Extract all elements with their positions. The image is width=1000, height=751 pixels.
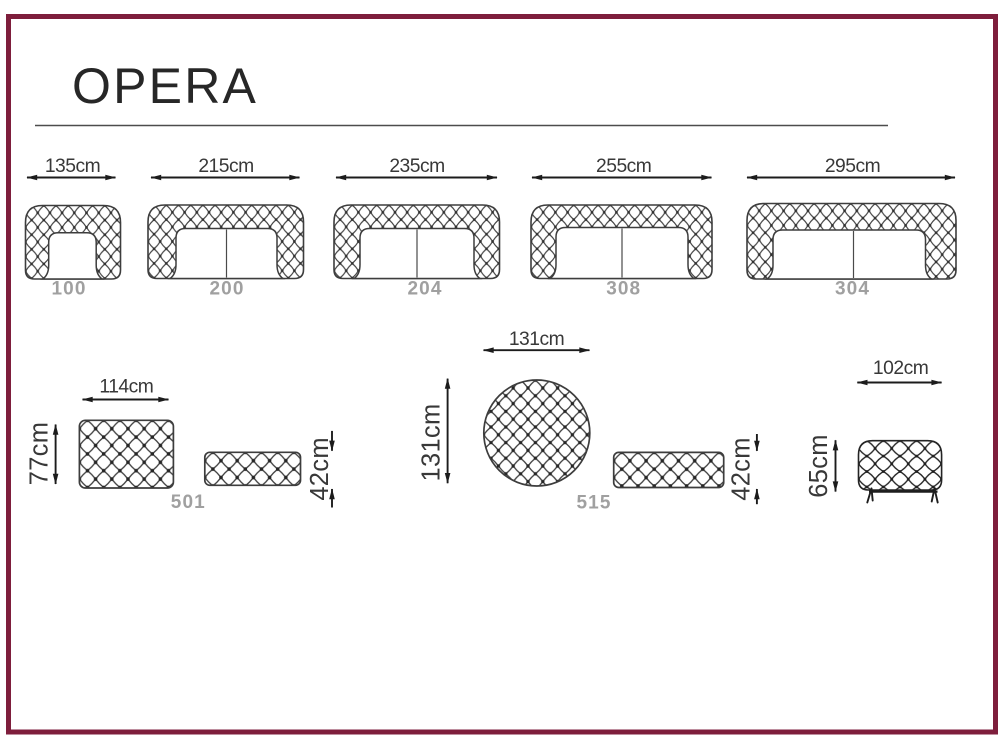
svg-text:OPERA: OPERA	[72, 58, 258, 114]
svg-text:515: 515	[576, 493, 611, 514]
svg-text:308: 308	[606, 279, 641, 300]
svg-text:131cm: 131cm	[509, 329, 564, 350]
svg-text:255cm: 255cm	[596, 156, 651, 177]
svg-text:131cm: 131cm	[418, 403, 446, 481]
svg-text:100: 100	[51, 279, 86, 300]
svg-text:215cm: 215cm	[198, 156, 253, 177]
svg-text:114cm: 114cm	[99, 377, 153, 398]
svg-text:204: 204	[407, 279, 442, 300]
svg-text:77cm: 77cm	[26, 422, 54, 486]
svg-text:135cm: 135cm	[45, 156, 100, 177]
svg-text:65cm: 65cm	[805, 434, 833, 498]
svg-text:295cm: 295cm	[825, 156, 880, 177]
svg-text:235cm: 235cm	[389, 156, 444, 177]
svg-text:501: 501	[171, 492, 206, 513]
svg-text:304: 304	[835, 279, 870, 300]
svg-text:102cm: 102cm	[873, 358, 928, 379]
svg-text:42cm: 42cm	[728, 437, 756, 501]
svg-text:200: 200	[209, 279, 244, 300]
svg-text:42cm: 42cm	[306, 437, 334, 501]
